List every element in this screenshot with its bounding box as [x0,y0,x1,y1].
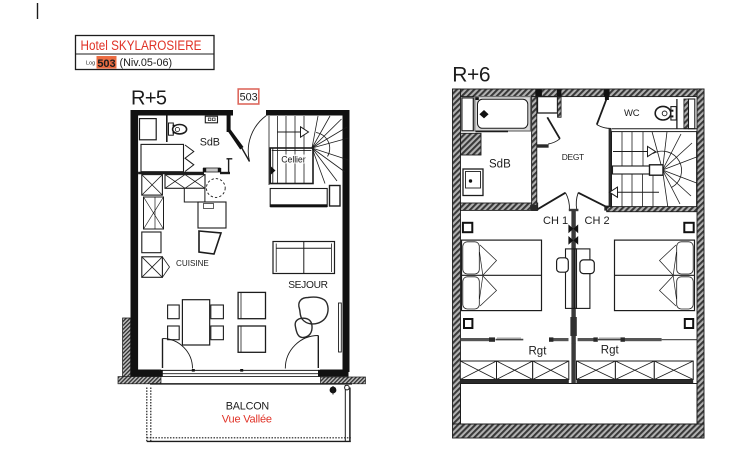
svg-text:R+5: R+5 [131,88,167,110]
svg-text:Rgt: Rgt [601,345,620,357]
svg-text:503: 503 [240,92,258,104]
svg-text:BALCON: BALCON [226,401,269,413]
svg-text:Cellier: Cellier [281,155,305,165]
svg-text:SdB: SdB [200,136,220,148]
svg-text:Rgt: Rgt [529,346,548,358]
svg-text:SEJOUR: SEJOUR [288,280,328,291]
svg-text:R+6: R+6 [452,64,490,87]
svg-text:CH 2: CH 2 [585,215,610,227]
svg-text:WC: WC [624,108,640,119]
svg-text:503: 503 [97,58,115,70]
svg-text:Hotel SKYLAROSIERE: Hotel SKYLAROSIERE [81,38,202,53]
svg-text:SdB: SdB [489,159,511,171]
svg-text:(Niv.05-06): (Niv.05-06) [120,57,173,69]
svg-text:DEGT: DEGT [562,152,584,162]
svg-text:Vue Vallée: Vue Vallée [222,414,272,426]
svg-text:CH 1: CH 1 [543,215,568,227]
svg-text:CUISINE: CUISINE [176,259,209,268]
svg-text:Log: Log [86,61,95,67]
